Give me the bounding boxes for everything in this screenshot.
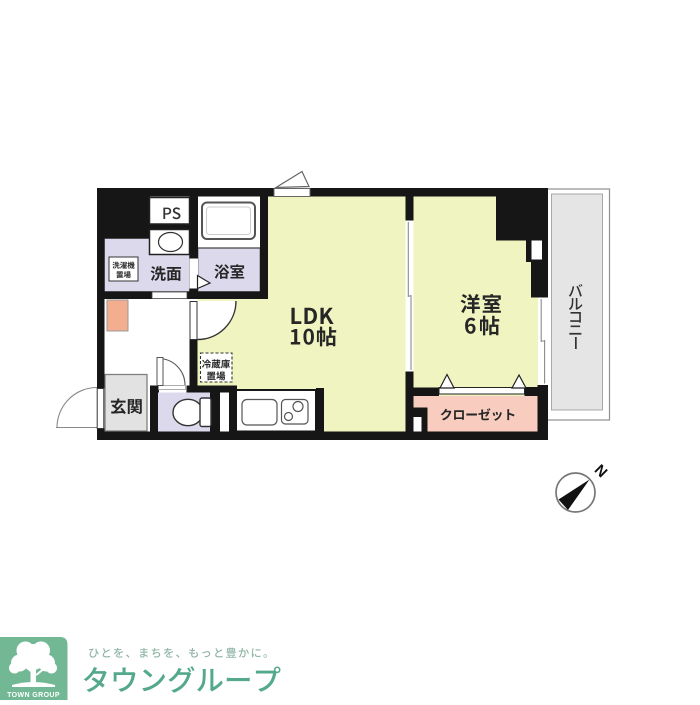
svg-text:TOWN GROUP: TOWN GROUP [7,692,60,699]
